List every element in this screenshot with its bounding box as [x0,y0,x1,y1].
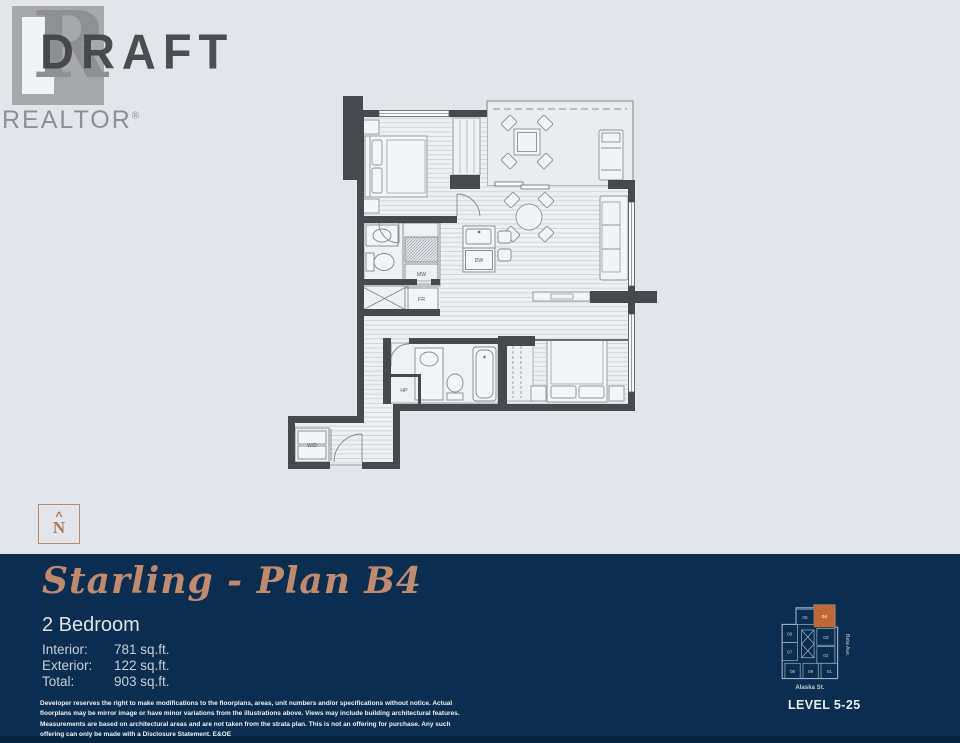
plan-title: Starling - Plan B4 [42,560,422,602]
keyplan-unit-number: 06 [787,632,793,637]
spec-value: 122 sq.ft. [114,658,170,673]
spec-row-exterior: Exterior:122 sq.ft. [42,658,170,674]
pillow [372,168,382,193]
keyplan: 05 04 06 03 07 02 08 09 01 Beta Ave. Ala… [778,602,864,694]
spec-label: Exterior: [42,658,114,674]
pillow [372,140,382,165]
keyplan-unit-number: 02 [823,653,829,658]
north-arrow: ^ N [38,504,80,544]
plan-specs: Interior:781 sq.ft. Exterior:122 sq.ft. … [42,642,170,690]
spec-row-total: Total:903 sq.ft. [42,674,170,690]
toilet-tank [366,253,374,271]
nightstand [531,386,546,401]
toilet-tank [447,393,463,400]
dishwasher-label: DW [475,258,484,264]
lounge-chair [599,130,623,180]
keyplan-core [802,630,814,658]
keyplan-unit-number-highlighted: 04 [822,614,828,619]
pillow [579,386,604,398]
dining-table [516,204,542,230]
keyplan-unit-number: 05 [802,615,808,620]
tv-console [533,292,590,301]
spec-value: 903 sq.ft. [114,674,170,689]
wardrobe [453,118,480,175]
street-label-alaska: Alaska St. [795,684,824,691]
heat-pump-label: HP [400,388,408,394]
plan-subtitle: 2 Bedroom [42,614,140,637]
patio-table [514,129,540,155]
sofa [600,196,628,280]
toilet [374,254,394,271]
spec-row-interior: Interior:781 sq.ft. [42,642,170,658]
microwave-label: MW [417,272,426,278]
floorplan-drawing: DW MW FR HP W/D [283,90,663,484]
spec-label: Interior: [42,642,114,658]
nightstand [363,199,379,213]
keyplan-unit-number: 03 [823,635,829,640]
washer-dryer-label: W/D [307,443,317,449]
keyplan-unit-number: 01 [827,669,833,674]
balcony [487,101,633,186]
draft-watermark: DRAFT [40,23,234,80]
disclaimer-text: Developer reserves the right to make mod… [40,699,470,741]
nightstand [363,120,379,134]
realtor-wordmark-text: REALTOR [2,106,132,134]
level-label: LEVEL 5-25 [788,698,861,712]
vanity [366,225,398,246]
fridge-label: FR [418,297,425,303]
balcony-slider [495,182,523,186]
street-label-beta: Beta Ave. [844,634,850,656]
nightstand [609,386,624,401]
toilet [447,374,463,392]
kitchen-island [463,226,495,272]
keyplan-unit-number: 07 [787,650,793,655]
spec-label: Total: [42,674,114,690]
spec-value: 781 sq.ft. [114,642,170,657]
range-stove [405,237,438,262]
registered-symbol: ® [132,111,141,122]
keyplan-unit-number: 09 [808,669,814,674]
north-label: N [53,519,65,536]
keyplan-unit-number: 08 [790,669,796,674]
balcony-slider [521,185,549,189]
pillow [551,386,576,398]
realtor-wordmark: REALTOR® [2,106,141,135]
